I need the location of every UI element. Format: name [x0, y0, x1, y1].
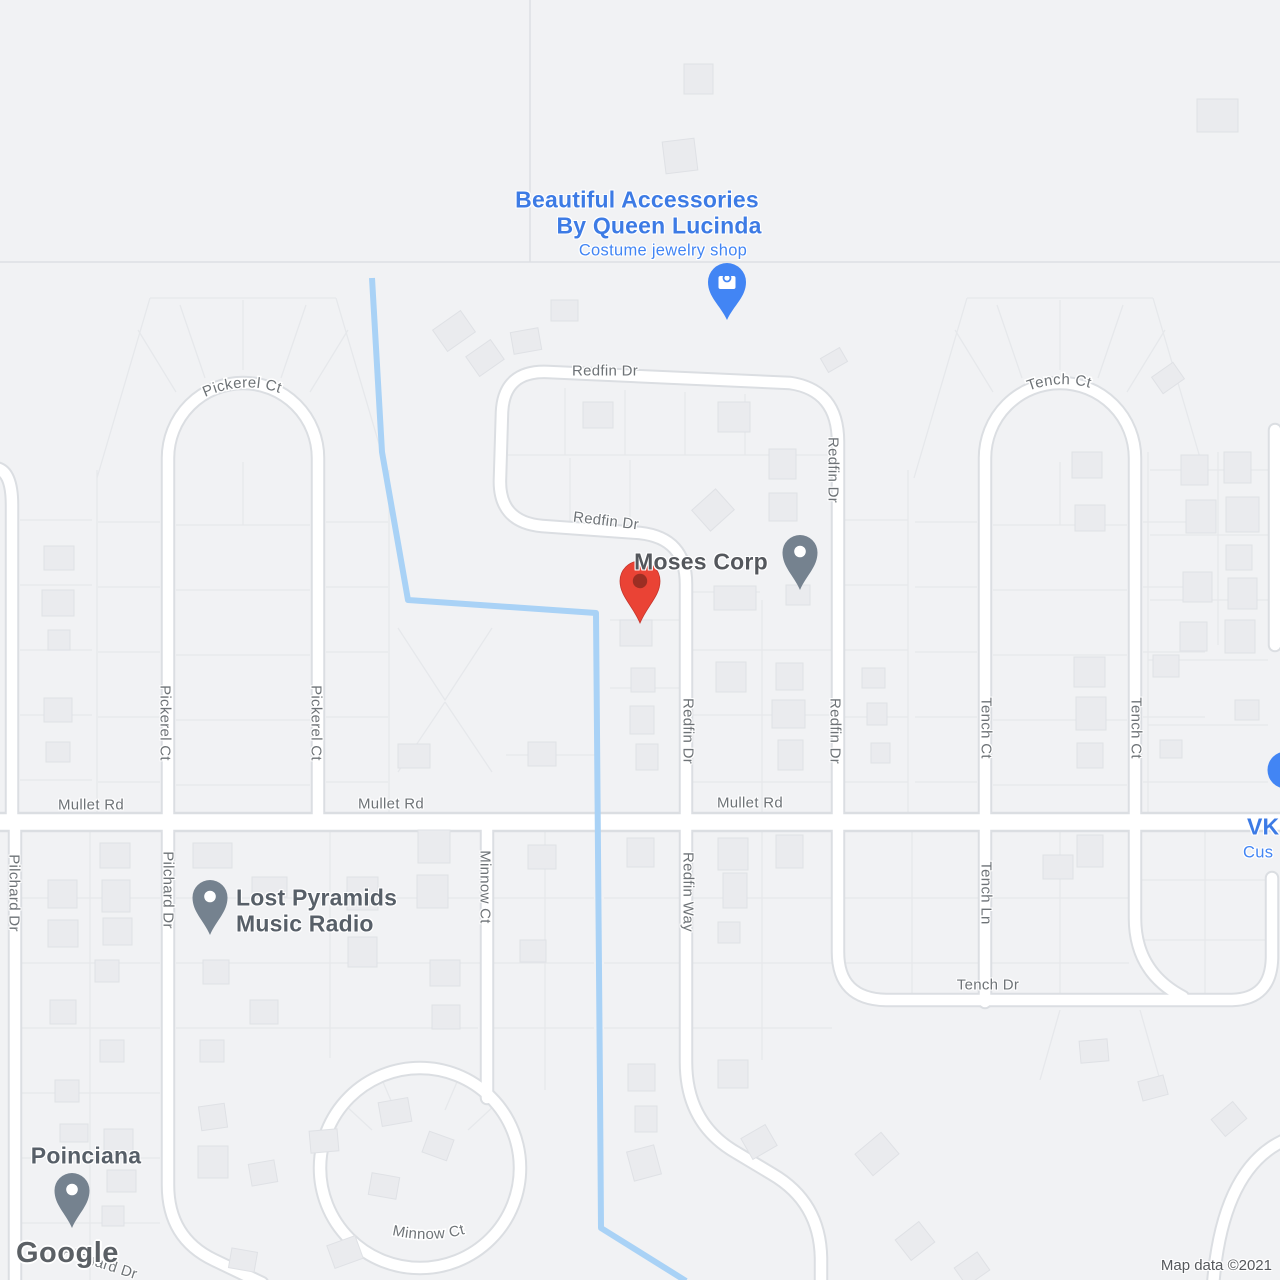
- street-label-mullet-rd-3: Mullet Rd: [717, 795, 783, 812]
- map-attribution: Map data ©2021: [1161, 1257, 1272, 1274]
- google-logo[interactable]: Google: [16, 1237, 119, 1270]
- jewelry-shop-name-line2[interactable]: By Queen Lucinda: [556, 213, 761, 240]
- street-label-tench-dr: Tench Dr: [957, 977, 1019, 994]
- street-label-tench-ln: Tench Ln: [978, 861, 995, 924]
- lost-pyramids-label-line2[interactable]: Music Radio: [236, 911, 374, 938]
- jewelry-shop-category[interactable]: Costume jewelry shop: [579, 242, 747, 261]
- street-label-redfin-dr-top: Redfin Dr: [572, 363, 638, 380]
- street-label-redfin-dr-vertical-right: Redfin Dr: [827, 698, 844, 764]
- label-layer: Redfin Dr Redfin Dr Redfin Dr Redfin Dr …: [0, 0, 1280, 1280]
- street-label-pilchard-dr-inner: Pilchard Dr: [160, 851, 177, 929]
- street-label-redfin-dr-vertical-upper: Redfin Dr: [825, 437, 842, 503]
- vk-label-category[interactable]: Cus: [1243, 844, 1273, 863]
- vk-label-name[interactable]: VK: [1247, 814, 1279, 841]
- poinciana-label[interactable]: Poinciana: [31, 1143, 141, 1170]
- street-label-tench-ct-west: Tench Ct: [978, 697, 995, 759]
- moses-corp-label[interactable]: Moses Corp: [634, 549, 768, 576]
- street-label-tench-ct-east: Tench Ct: [1128, 697, 1145, 759]
- street-label-mullet-rd-1: Mullet Rd: [58, 797, 124, 814]
- street-label-pickerel-ct-west: Pickerel Ct: [157, 685, 174, 761]
- street-label-redfin-way: Redfin Way: [680, 852, 697, 932]
- street-label-redfin-dr-mid: Redfin Dr: [572, 509, 640, 534]
- lost-pyramids-label-line1[interactable]: Lost Pyramids: [236, 885, 397, 912]
- map-canvas[interactable]: Pickerel Ct Tench Ct Minnow Ct Redfin Dr…: [0, 0, 1280, 1280]
- jewelry-shop-name-line1[interactable]: Beautiful Accessories: [515, 187, 759, 214]
- street-label-redfin-dr-vertical-left: Redfin Dr: [680, 698, 697, 764]
- street-label-minnow-ct-vertical: Minnow Ct: [477, 850, 494, 924]
- street-label-mullet-rd-2: Mullet Rd: [358, 796, 424, 813]
- street-label-pickerel-ct-east: Pickerel Ct: [308, 685, 325, 761]
- street-label-pilchard-dr-edge: Pilchard Dr: [6, 854, 23, 932]
